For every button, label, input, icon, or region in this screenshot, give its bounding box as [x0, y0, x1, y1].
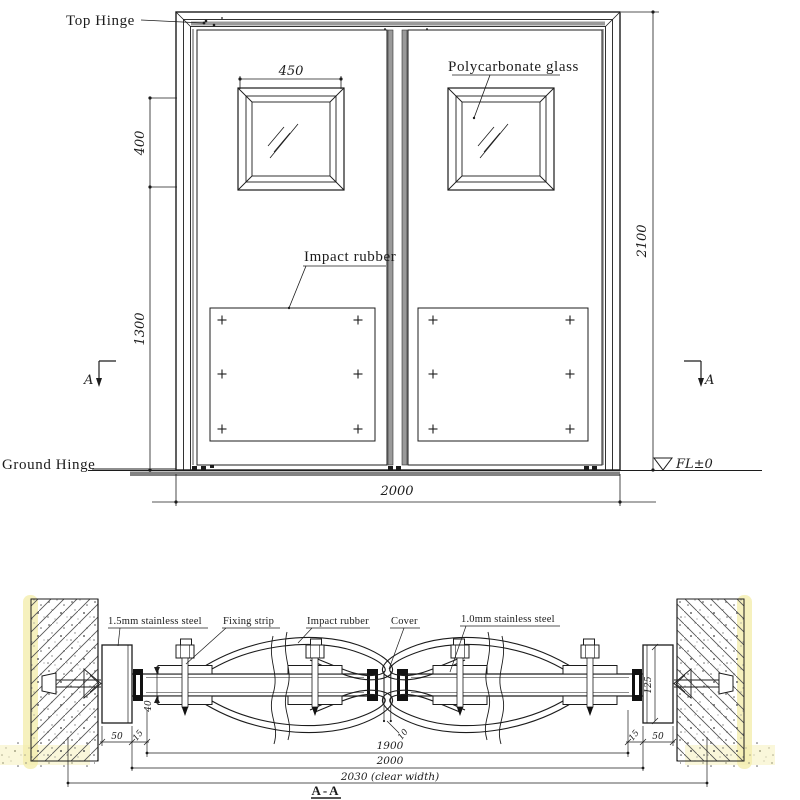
glass-slashes [268, 124, 298, 158]
left-door-leaf [197, 30, 387, 465]
dim-1300-text: 1300 [133, 312, 148, 345]
ground-hinge-label: Ground Hinge [2, 457, 95, 473]
impact-rubber-section-label: Impact rubber [307, 616, 369, 627]
dim-50-left-text: 50 [111, 732, 123, 742]
dim-clear-width-text: 2030 (clear width) [340, 771, 439, 783]
dim-2000-text: 2000 [379, 484, 413, 499]
dim-50-right-text: 50 [652, 732, 664, 742]
dim-left-heights [148, 96, 177, 471]
section-letter-right: A [704, 373, 714, 388]
section-marker-right [684, 361, 704, 387]
left-window [238, 88, 344, 190]
ground-hinge-detail [192, 465, 597, 470]
dim-1900-text: 1900 [377, 740, 404, 752]
level-label: FL±0 [675, 457, 713, 472]
impact-rubber-label: Impact rubber [304, 249, 396, 265]
glass-slashes [478, 124, 508, 158]
door-steel-label: 1.0mm stainless steel [461, 614, 555, 625]
meeting-stiles [388, 30, 407, 465]
dim-400-text: 400 [133, 131, 148, 157]
section-title: A-A [311, 783, 340, 798]
dim-40-text: 40 [144, 700, 154, 713]
dim-450-text: 450 [278, 64, 304, 79]
leader-lines [92, 20, 560, 469]
level-triangle-icon [654, 458, 672, 470]
elevation-drawing: Top Hinge Polycarbonate glass Impact rub… [2, 10, 762, 506]
left-impact-plate [210, 308, 375, 441]
right-door-leaf [408, 30, 602, 465]
frame-steel-label: 1.5mm stainless steel [108, 616, 202, 627]
section-letter-left: A [83, 373, 93, 388]
section-marker-left [96, 361, 116, 387]
dim-125-text: 125 [644, 676, 654, 693]
polycarbonate-glass-label: Polycarbonate glass [448, 59, 579, 75]
fixing-strip-label: Fixing strip [223, 616, 274, 627]
section-drawing: 1.5mm stainless steel Fixing strip Impac… [0, 595, 775, 798]
dim-2000-section-text: 2000 [376, 755, 404, 767]
top-hinge-label: Top Hinge [66, 13, 135, 29]
right-impact-plate [418, 308, 588, 441]
right-window [448, 88, 554, 190]
dim-2100-text: 2100 [635, 224, 650, 258]
door-frame [176, 12, 620, 470]
cover-label: Cover [391, 616, 418, 627]
drawing-sheet: Top Hinge Polycarbonate glass Impact rub… [0, 0, 800, 800]
threshold-shade [130, 472, 620, 477]
section-right-side [382, 595, 775, 769]
